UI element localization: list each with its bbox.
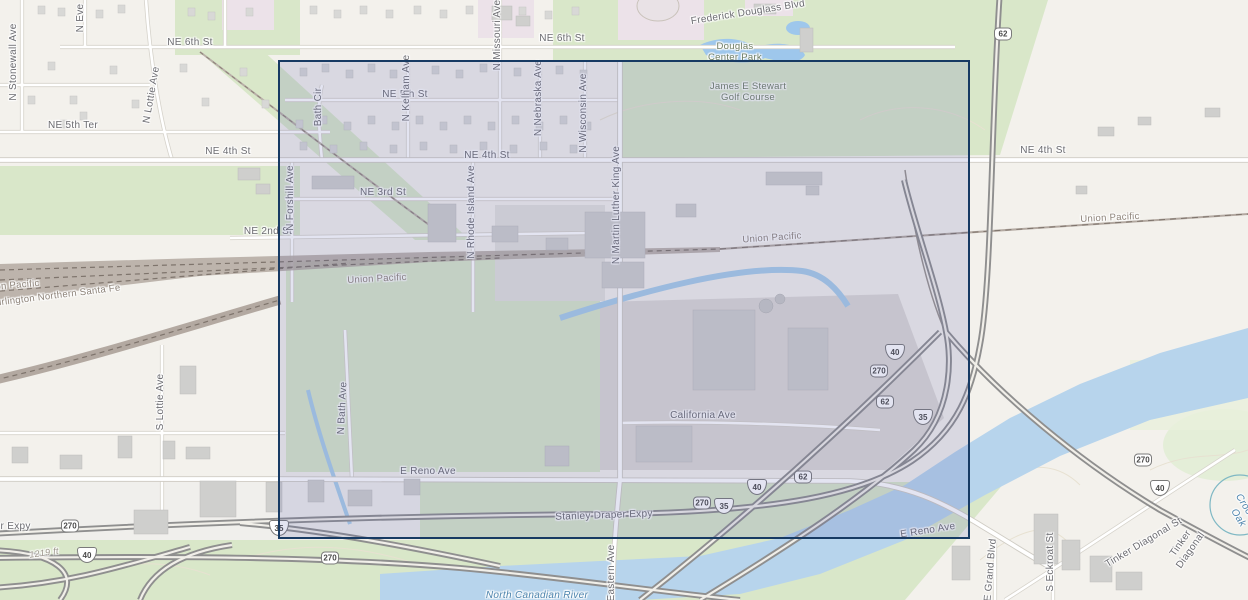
map-viewport[interactable]: N Stonewall AveN EveN Lottie AveNE 6th S… bbox=[0, 0, 1248, 600]
selection-rectangle[interactable] bbox=[278, 60, 970, 539]
